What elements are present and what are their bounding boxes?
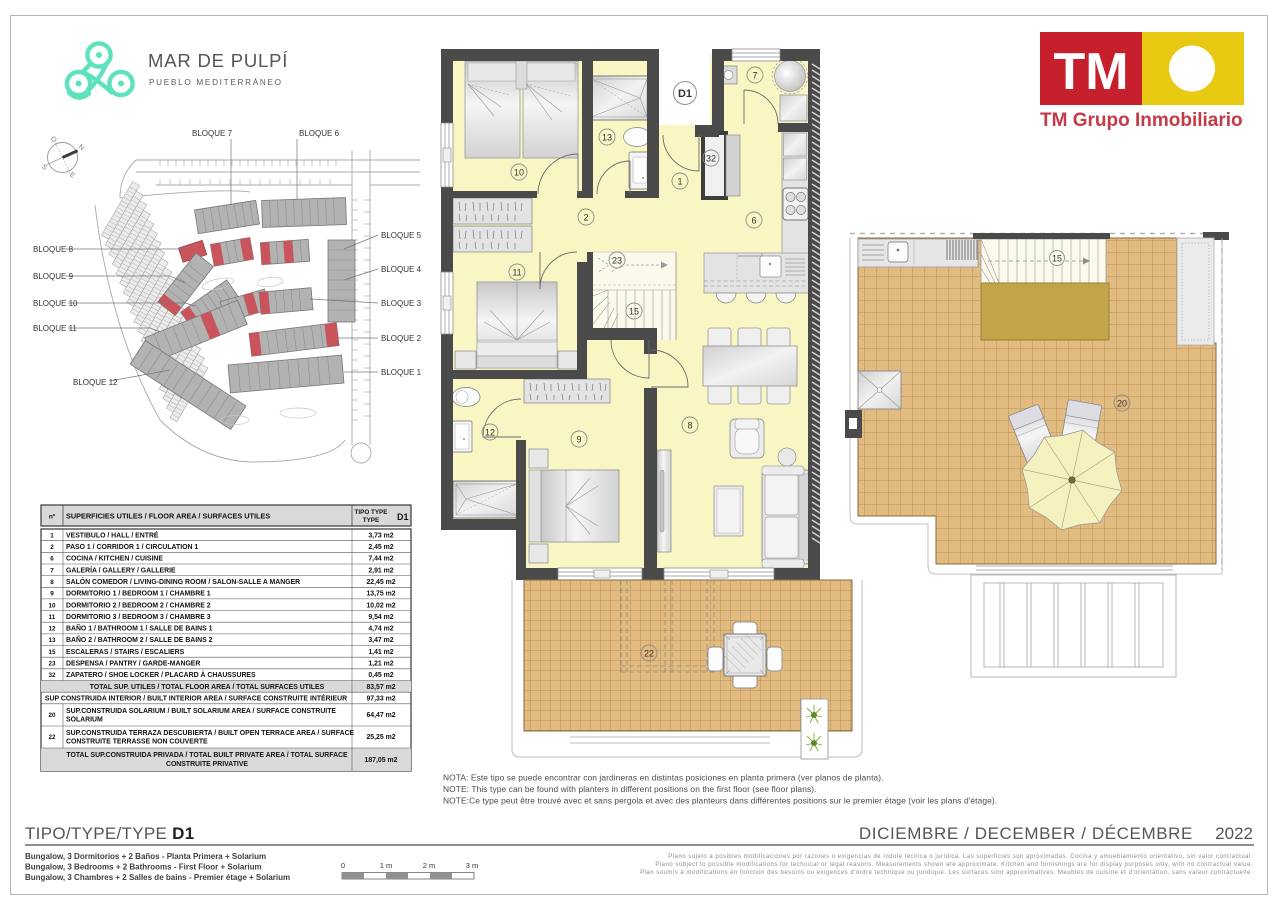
svg-text:BLOQUE 10: BLOQUE 10 — [33, 299, 78, 308]
svg-text:3 m: 3 m — [466, 861, 479, 870]
svg-text:2: 2 — [50, 544, 54, 551]
svg-text:1 m: 1 m — [380, 861, 393, 870]
svg-text:1: 1 — [50, 533, 54, 540]
svg-text:BLOQUE 11: BLOQUE 11 — [33, 324, 77, 333]
svg-text:COCINA / KITCHEN / CUISINE: COCINA / KITCHEN / CUISINE — [66, 556, 163, 563]
svg-text:nº: nº — [49, 514, 56, 521]
svg-text:DORMITORIO 2 / BEDROOM 2 / CHA: DORMITORIO 2 / BEDROOM 2 / CHAMBRE 2 — [66, 602, 211, 609]
svg-text:2,91 m2: 2,91 m2 — [368, 567, 393, 574]
svg-text:2 m: 2 m — [423, 861, 436, 870]
svg-text:DESPENSA / PANTRY / GARDE-MANG: DESPENSA / PANTRY / GARDE-MANGER — [66, 661, 200, 668]
svg-text:7: 7 — [50, 567, 54, 574]
svg-text:25,25 m2: 25,25 m2 — [366, 734, 395, 741]
svg-text:Plano sujeto a posibles modifi: Plano sujeto a posibles modificaciones p… — [668, 854, 1253, 860]
svg-text:97,33 m2: 97,33 m2 — [366, 696, 395, 703]
svg-text:SUP.CONSTRUIDA SOLARIUM / BUIL: SUP.CONSTRUIDA SOLARIUM / BUILT SOLARIUM… — [66, 708, 336, 715]
svg-text:SUPERFICIES UTILES / FLOOR ARE: SUPERFICIES UTILES / FLOOR AREA / SURFAC… — [66, 512, 270, 521]
svg-text:83,57 m2: 83,57 m2 — [366, 684, 395, 691]
svg-text:3,47 m2: 3,47 m2 — [368, 637, 393, 644]
svg-text:NOTE:Ce type peut être trouvé: NOTE:Ce type peut être trouvé avec et sa… — [443, 796, 997, 806]
svg-text:22: 22 — [644, 649, 654, 659]
svg-text:10: 10 — [514, 168, 524, 178]
svg-text:TIPO TYPE: TIPO TYPE — [355, 509, 388, 516]
svg-text:9: 9 — [50, 591, 54, 598]
svg-text:DICIEMBRE / DECEMBER / DÉCEMBR: DICIEMBRE / DECEMBER / DÉCEMBRE — [859, 824, 1193, 843]
svg-text:23: 23 — [48, 661, 56, 668]
svg-text:187,05 m2: 187,05 m2 — [365, 757, 398, 764]
svg-text:20: 20 — [1117, 399, 1127, 409]
svg-text:15: 15 — [629, 307, 639, 317]
svg-text:ZAPATERO / SHOE LOCKER / PLACA: ZAPATERO / SHOE LOCKER / PLACARD À CHAUS… — [66, 670, 256, 679]
svg-text:TYPE: TYPE — [363, 517, 379, 524]
svg-text:7: 7 — [752, 71, 757, 81]
svg-text:DORMITORIO 1 / BEDROOM 1 / CHA: DORMITORIO 1 / BEDROOM 1 / CHAMBRE 1 — [66, 591, 211, 598]
svg-text:10: 10 — [48, 602, 56, 609]
svg-text:PASO 1 / CORRIDOR 1 / CIRCULAT: PASO 1 / CORRIDOR 1 / CIRCULATION 1 — [66, 544, 198, 551]
svg-text:2,45 m2: 2,45 m2 — [368, 544, 393, 551]
svg-text:TOTAL SUP.CONSTRUIDA PRIVADA /: TOTAL SUP.CONSTRUIDA PRIVADA / TOTAL BUI… — [66, 752, 348, 759]
svg-text:BAÑO 1 / BATHROOM 1 / SALLE DE: BAÑO 1 / BATHROOM 1 / SALLE DE BAINS 1 — [66, 624, 213, 633]
svg-text:8: 8 — [687, 421, 692, 431]
svg-text:TOTAL SUP. UTILES / TOTAL FLOO: TOTAL SUP. UTILES / TOTAL FLOOR AREA / T… — [90, 684, 325, 691]
svg-text:1: 1 — [677, 177, 682, 187]
svg-text:15: 15 — [1052, 254, 1062, 264]
svg-text:SUP CONSTRUIDA INTERIOR / BUIL: SUP CONSTRUIDA INTERIOR / BUILT INTERIOR… — [45, 694, 347, 703]
svg-text:20: 20 — [48, 712, 56, 719]
svg-text:9: 9 — [576, 435, 581, 445]
svg-text:6: 6 — [50, 556, 54, 563]
svg-text:8: 8 — [50, 579, 54, 586]
svg-text:NOTE: This type can be found w: NOTE: This type can be found with plante… — [443, 784, 817, 794]
svg-text:BLOQUE 2: BLOQUE 2 — [381, 334, 422, 343]
svg-text:11: 11 — [512, 268, 521, 278]
svg-text:6: 6 — [751, 216, 756, 226]
svg-text:TIPO/TYPE/TYPE D1: TIPO/TYPE/TYPE D1 — [25, 824, 194, 843]
svg-text:Plan soumis à modifications en: Plan soumis à modifications en fonction … — [640, 870, 1253, 876]
svg-text:SOLARIUM: SOLARIUM — [66, 717, 103, 724]
svg-text:SALÓN COMEDOR / LIVING-DINING: SALÓN COMEDOR / LIVING-DINING ROOM / SAL… — [66, 577, 300, 586]
svg-text:12: 12 — [48, 626, 56, 633]
svg-text:1,21 m2: 1,21 m2 — [368, 661, 393, 668]
svg-text:BLOQUE 7: BLOQUE 7 — [192, 129, 233, 138]
svg-text:Plano subject to possible modi: Plano subject to possible modifications … — [655, 862, 1253, 868]
svg-text:D1: D1 — [397, 512, 409, 522]
svg-text:10,02 m2: 10,02 m2 — [366, 602, 395, 609]
svg-text:11: 11 — [49, 614, 56, 621]
svg-text:DORMITORIO 3 / BEDROOM 3 / CHA: DORMITORIO 3 / BEDROOM 3 / CHAMBRE 3 — [66, 614, 211, 621]
svg-text:CONSTRUITE PRIVATIVE: CONSTRUITE PRIVATIVE — [166, 761, 248, 768]
svg-text:ESCALERAS / STAIRS / ESCALIERS: ESCALERAS / STAIRS / ESCALIERS — [66, 649, 185, 656]
svg-text:BLOQUE 4: BLOQUE 4 — [381, 265, 422, 274]
svg-text:TM: TM — [1053, 43, 1128, 101]
svg-text:3,73 m2: 3,73 m2 — [368, 533, 393, 540]
svg-text:0: 0 — [341, 861, 345, 870]
svg-text:64,47 m2: 64,47 m2 — [366, 712, 395, 719]
svg-text:23: 23 — [612, 256, 622, 266]
svg-text:Bungalow, 3 Chambres + 2 Salle: Bungalow, 3 Chambres + 2 Salles de bains… — [25, 873, 290, 882]
svg-text:PUEBLO MEDITERRÁNEO: PUEBLO MEDITERRÁNEO — [149, 77, 283, 87]
svg-text:32: 32 — [48, 672, 56, 679]
svg-text:SUP.CONSTRUIDA TERRAZA DESCUBI: SUP.CONSTRUIDA TERRAZA DESCUBIERTA / BUI… — [66, 730, 355, 737]
svg-text:22,45 m2: 22,45 m2 — [366, 579, 395, 586]
svg-text:2: 2 — [583, 213, 588, 223]
svg-text:GALERÍA / GALLERY / GALLERIE: GALERÍA / GALLERY / GALLERIE — [66, 565, 176, 574]
svg-text:9,54 m2: 9,54 m2 — [368, 614, 393, 621]
svg-text:BLOQUE 12: BLOQUE 12 — [73, 378, 118, 387]
svg-text:13,75 m2: 13,75 m2 — [366, 591, 395, 598]
svg-text:BLOQUE 8: BLOQUE 8 — [33, 245, 74, 254]
svg-text:BLOQUE 9: BLOQUE 9 — [33, 272, 74, 281]
svg-text:MAR DE PULPÍ: MAR DE PULPÍ — [148, 50, 288, 71]
svg-text:BLOQUE 3: BLOQUE 3 — [381, 299, 422, 308]
svg-text:BLOQUE 1: BLOQUE 1 — [381, 368, 422, 377]
svg-text:4,74 m2: 4,74 m2 — [368, 626, 393, 633]
svg-text:VESTIBULO / HALL / ENTRÉ: VESTIBULO / HALL / ENTRÉ — [66, 531, 159, 540]
svg-text:15: 15 — [48, 649, 56, 656]
svg-text:Bungalow, 3 Bedrooms + 2 Bathr: Bungalow, 3 Bedrooms + 2 Bathrooms - Fir… — [25, 863, 262, 872]
svg-text:CONSTRUITE TERRASSE NON COUVER: CONSTRUITE TERRASSE NON COUVERTE — [66, 739, 208, 746]
svg-text:TM Grupo Inmobiliario: TM Grupo Inmobiliario — [1040, 110, 1243, 131]
svg-text:Bungalow, 3 Dormitorios + 2 Ba: Bungalow, 3 Dormitorios + 2 Baños - Plan… — [25, 852, 266, 861]
svg-text:0,45 m2: 0,45 m2 — [368, 672, 393, 679]
svg-text:7,44 m2: 7,44 m2 — [368, 556, 393, 563]
svg-text:22: 22 — [48, 734, 56, 741]
svg-text:2022: 2022 — [1215, 824, 1253, 843]
svg-text:BAÑO 2 / BATHROOM 2 / SALLE DE: BAÑO 2 / BATHROOM 2 / SALLE DE BAINS 2 — [66, 635, 213, 644]
svg-text:D1: D1 — [678, 88, 692, 100]
svg-text:12: 12 — [485, 428, 495, 438]
svg-text:13: 13 — [602, 133, 612, 143]
svg-text:32: 32 — [706, 154, 716, 164]
svg-text:BLOQUE 6: BLOQUE 6 — [299, 129, 340, 138]
svg-text:NOTA: Este tipo se puede encon: NOTA: Este tipo se puede encontrar con j… — [443, 773, 884, 783]
svg-text:13: 13 — [48, 637, 56, 644]
svg-text:1,41 m2: 1,41 m2 — [368, 649, 393, 656]
svg-text:BLOQUE 5: BLOQUE 5 — [381, 231, 422, 240]
